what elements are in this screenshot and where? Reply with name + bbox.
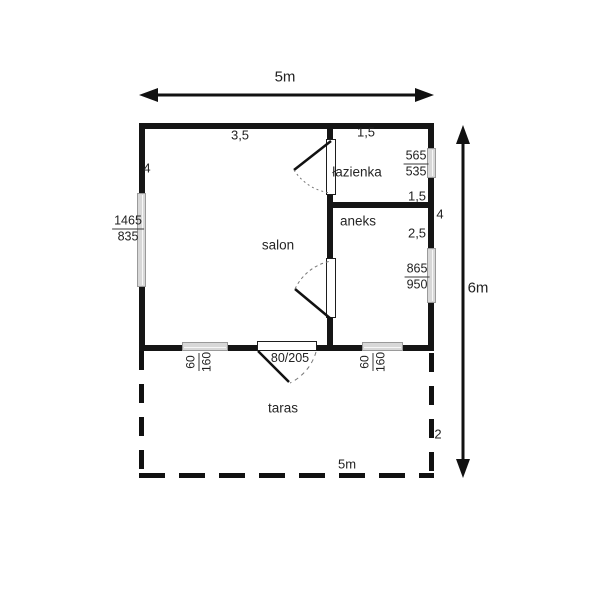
door-kitchenette xyxy=(326,258,336,318)
window-bathroom-dims: 565 535 xyxy=(404,149,429,180)
dim-bathroom-top-span: 1,5 xyxy=(357,126,375,139)
dim-kitchenette-right: 2,5 xyxy=(408,227,426,240)
bottom-width-label: 5m xyxy=(338,458,356,471)
room-label-salon: salon xyxy=(262,238,294,252)
plan-annotations-svg xyxy=(0,0,600,600)
wall-interior-vertical-lower xyxy=(327,318,333,348)
right-dimension-arrow xyxy=(456,125,470,478)
room-label-terrace: taras xyxy=(268,401,298,415)
right-height-label: 6m xyxy=(468,281,489,296)
floor-plan: 5m 6m 5m 3,5 1,5 4 1,5 4 2,5 2 salon łaz… xyxy=(0,0,600,600)
window-kitchenette-dims: 865 950 xyxy=(405,262,430,293)
room-label-kitchenette: aneks xyxy=(340,214,376,228)
top-dimension-arrow xyxy=(139,88,434,102)
window-bottom-left-dims: 60 160 xyxy=(184,350,215,374)
terrace-door-size-label: 80/205 xyxy=(271,352,309,365)
window-bottom-right-dims: 60 160 xyxy=(358,350,389,374)
door-terrace xyxy=(257,341,317,351)
dim-terrace-depth: 2 xyxy=(434,428,441,441)
dim-bathroom-right: 1,5 xyxy=(408,190,426,203)
window-left-dims: 1465 835 xyxy=(112,214,144,245)
dim-left-wall: 4 xyxy=(143,162,150,175)
wall-top xyxy=(139,123,434,129)
top-width-label: 5m xyxy=(275,70,296,85)
dim-right-wall-mid: 4 xyxy=(436,208,443,221)
room-label-bathroom: łazienka xyxy=(332,165,382,179)
dim-salon-top-span: 3,5 xyxy=(231,129,249,142)
